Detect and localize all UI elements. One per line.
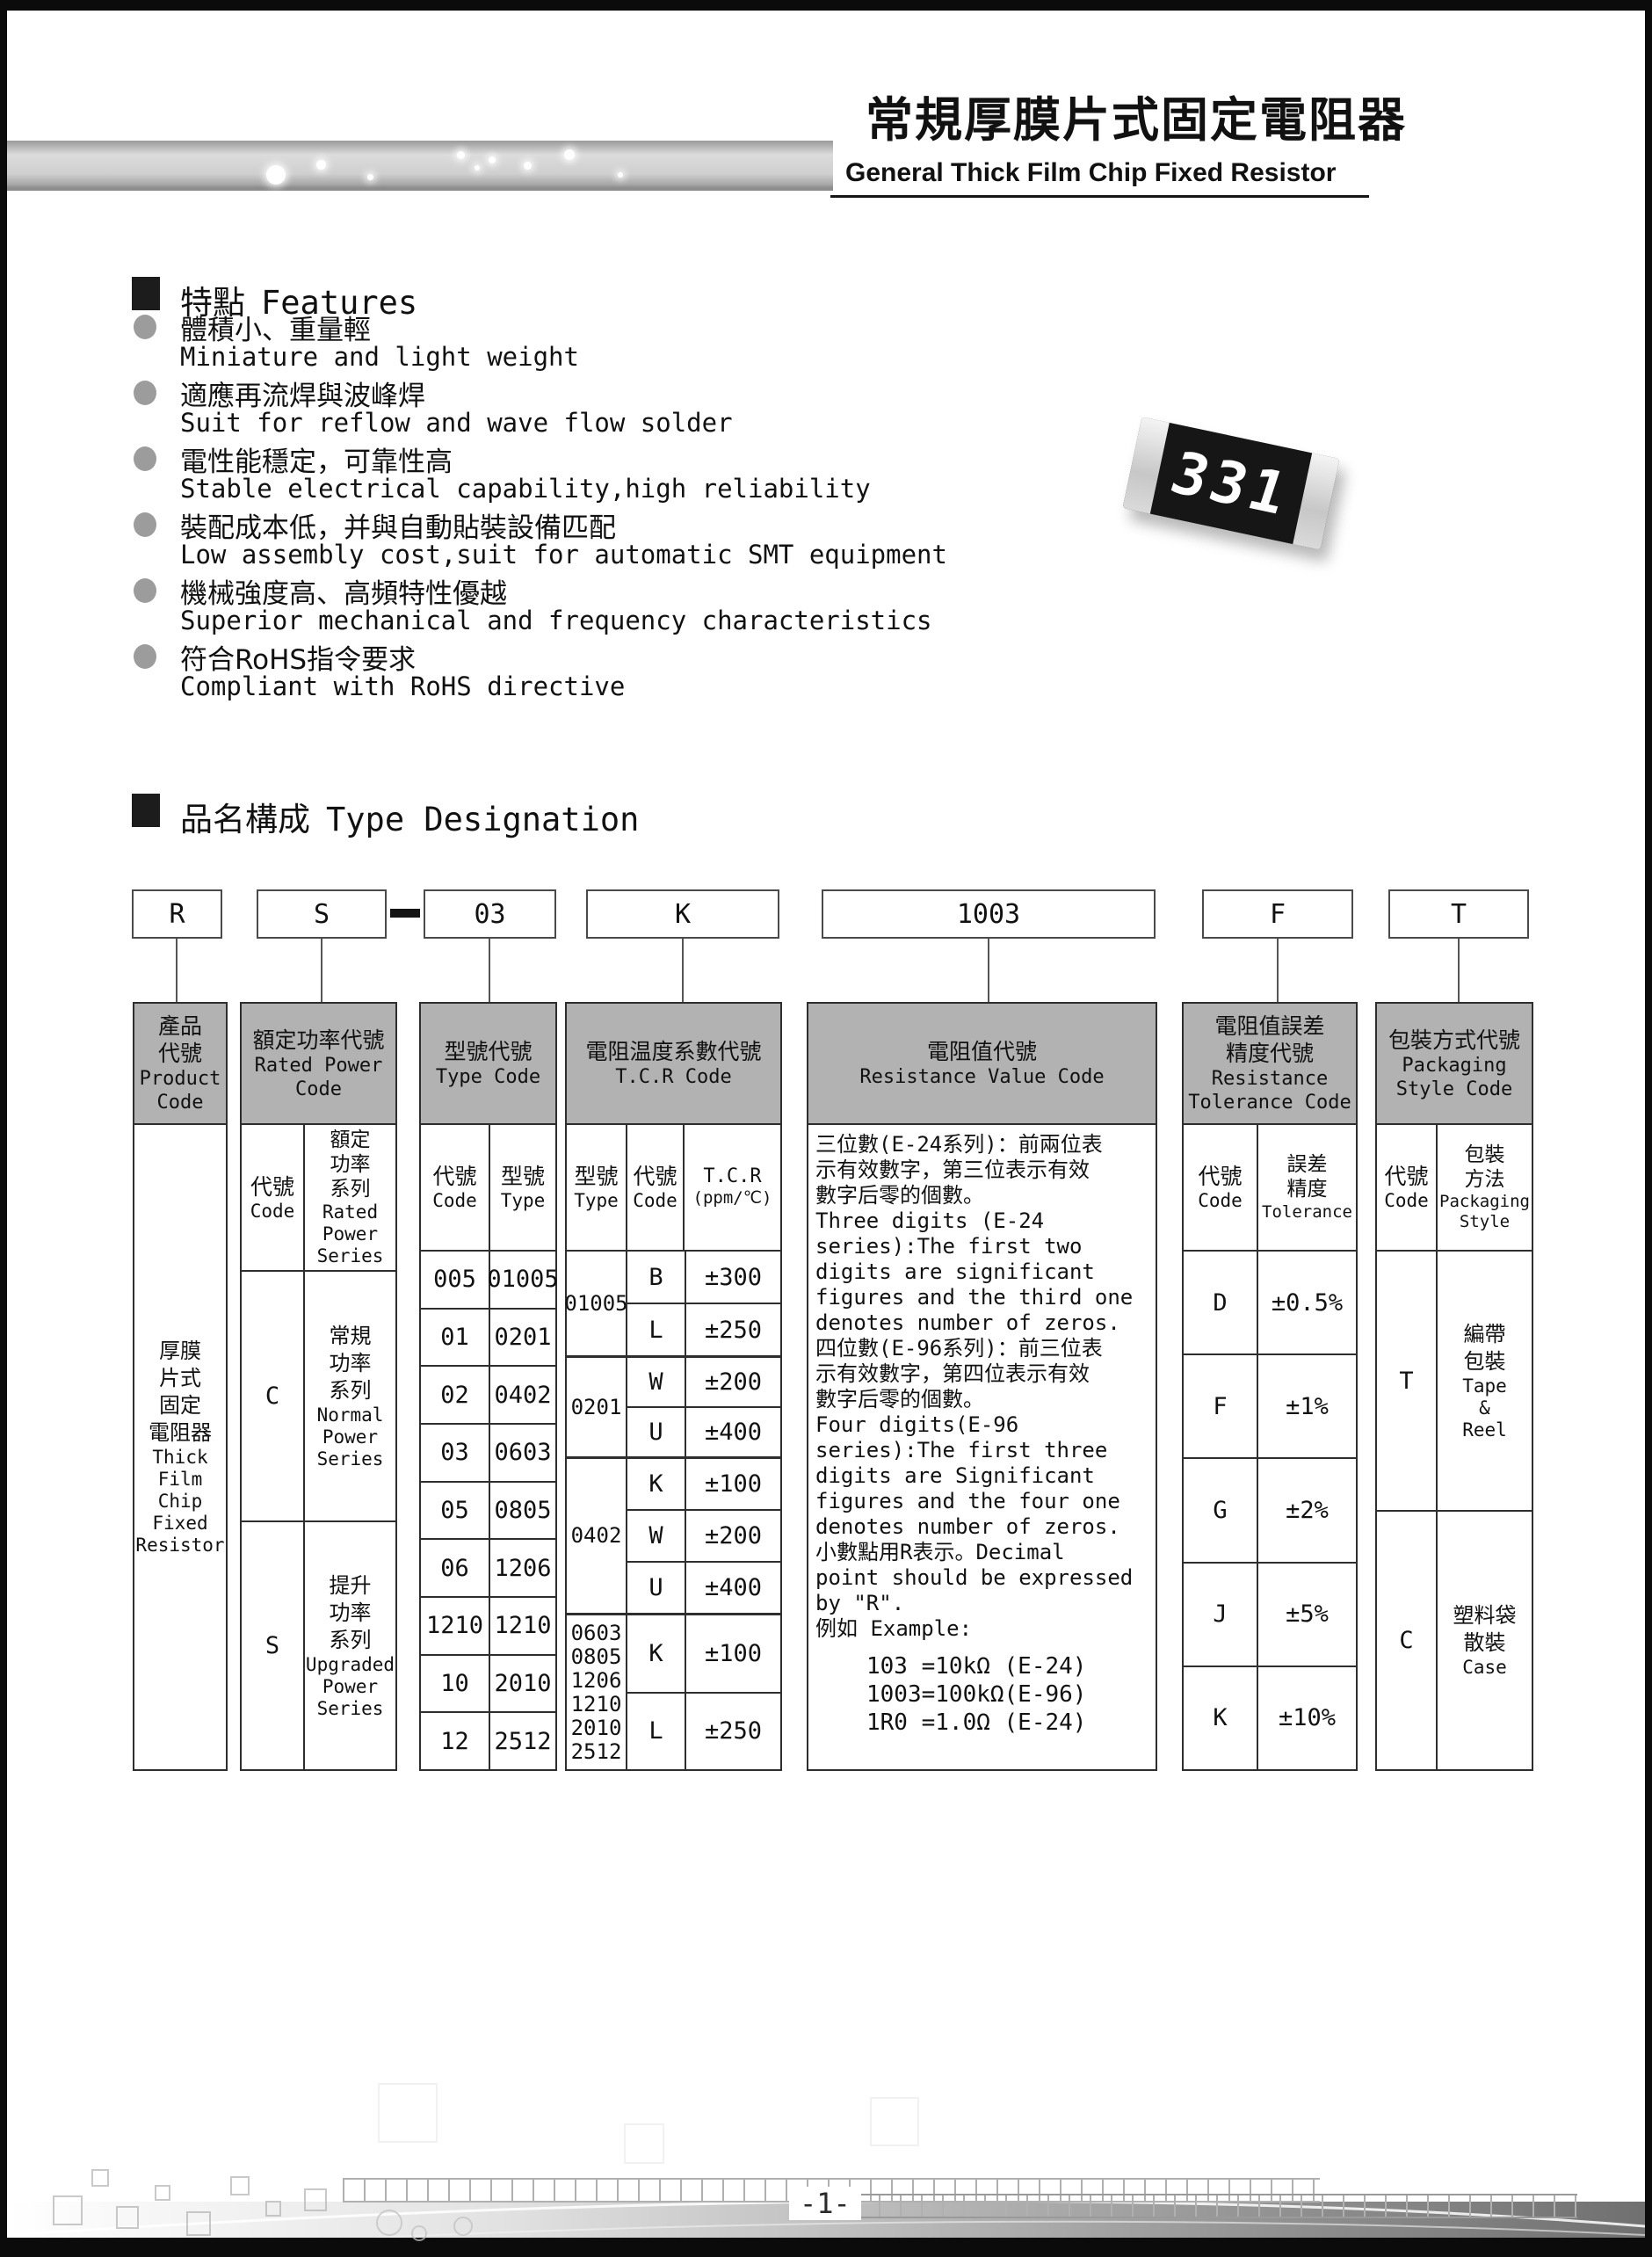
table-row: K±100 <box>627 1615 780 1692</box>
code-separator-dash <box>390 909 420 918</box>
type-code-cell: 06 <box>421 1540 489 1596</box>
code-box-type: 03 <box>424 889 556 939</box>
subheader-tolerance: 誤差 精度 Tolerance <box>1257 1125 1356 1250</box>
subheader-type: 型號 Type <box>489 1125 555 1250</box>
tcr-code-cell: B <box>627 1252 685 1303</box>
type-size-cell: 0603 <box>489 1425 555 1481</box>
page-title-chinese: 常規厚膜片式固定電阻器 <box>866 81 1407 150</box>
tcr-column: 電阻温度系數代號 T.C.R Code 型號 Type 代號 Code T.C.… <box>565 1002 782 1771</box>
header-gradient-band <box>7 141 833 191</box>
feature-bullet-icon <box>134 315 156 339</box>
table-row: 010201 <box>421 1308 555 1366</box>
power-series-en: Upgraded Power Series <box>306 1654 395 1720</box>
type-code-cell: 1210 <box>421 1598 489 1654</box>
table-row: U±400 <box>627 1406 780 1456</box>
subheader-type-en: Type <box>574 1190 619 1212</box>
table-row: W±200 <box>627 1509 780 1561</box>
type-code-cell: 03 <box>421 1425 489 1481</box>
tolerance-value-cell: ±1% <box>1257 1355 1356 1457</box>
tolerance-code-cell: K <box>1184 1667 1257 1769</box>
table-row: 050805 <box>421 1481 555 1539</box>
tcr-group-type: 0402 <box>567 1459 626 1613</box>
sparkle-dot <box>489 156 496 163</box>
rated-power-row-upgraded: S 提升 功率 系列 Upgraded Power Series <box>242 1522 395 1769</box>
tcr-value-cell: ±100 <box>685 1615 780 1692</box>
resistance-value-examples: 103 =10kΩ (E-24) 1003=100kΩ(E-96) 1R0 =1… <box>866 1652 1148 1737</box>
subheader-tol-en: Tolerance <box>1262 1201 1352 1223</box>
code-box-product: R <box>132 889 222 939</box>
table-row: B±300 <box>627 1252 780 1303</box>
table-row: 030603 <box>421 1423 555 1481</box>
tcr-value-cell: ±250 <box>685 1694 780 1770</box>
type-code-cell: 02 <box>421 1367 489 1423</box>
table-row: D±0.5% <box>1184 1252 1356 1353</box>
packaging-code: T <box>1377 1252 1436 1510</box>
sparkle-dot <box>457 151 465 159</box>
power-code: C <box>242 1272 303 1520</box>
tcr-group: 0603 0805 1206 1210 2010 2512 K±100 L±25… <box>567 1613 780 1769</box>
subheader-style-en: Packaging Style <box>1439 1192 1530 1232</box>
chip-body: 331 <box>1122 417 1339 550</box>
tcr-group-type: 0603 0805 1206 1210 2010 2512 <box>567 1615 626 1769</box>
tcr-group-type: 0201 <box>567 1358 626 1456</box>
packaging-header: 包裝方式代號 Packaging Style Code <box>1377 1004 1532 1125</box>
subheader-code-zh: 代號 <box>432 1163 476 1190</box>
tcr-group: 0402 K±100 W±200 U±400 <box>567 1456 780 1613</box>
subheader-code: 代號 Code <box>1184 1125 1257 1250</box>
feature-item-en: Low assembly cost,suit for automatic SMT… <box>180 540 947 570</box>
tcr-code-cell: W <box>627 1358 685 1406</box>
type-code-column: 型號代號 Type Code 代號 Code 型號 Type 00501005 … <box>419 1002 557 1771</box>
header-zh: 電阻值誤差 精度代號 <box>1214 1012 1324 1067</box>
subheader-code: 代號 Code <box>242 1125 303 1270</box>
subheader-style: 包裝 方法 Packaging Style <box>1436 1125 1532 1250</box>
product-code-header: 產品 代號 Product Code <box>134 1004 226 1125</box>
subheader-type-zh: 型號 <box>574 1163 618 1190</box>
header-en: Type Code <box>436 1065 540 1089</box>
tcr-subheader: 型號 Type 代號 Code T.C.R (ppm/℃) <box>567 1125 780 1252</box>
subheader-code: 代號 Code <box>421 1125 489 1250</box>
type-code-cell: 10 <box>421 1656 489 1712</box>
connector-line <box>176 939 178 1002</box>
packaging-style-en: Tape & Reel <box>1462 1375 1507 1441</box>
watermark-square <box>378 2083 438 2143</box>
decor-square <box>53 2195 83 2225</box>
subheader-type-zh: 型號 <box>501 1163 545 1190</box>
table-row: 12101210 <box>421 1596 555 1654</box>
table-row: K±100 <box>627 1459 780 1509</box>
packaging-style-zh: 編帶 包裝 <box>1464 1321 1506 1375</box>
subheader-type-en: Type <box>501 1190 546 1212</box>
type-size-cell: 2512 <box>489 1713 555 1769</box>
tcr-code-cell: L <box>627 1304 685 1355</box>
subheader-code-zh: 代號 <box>250 1173 294 1201</box>
code-box-packaging: T <box>1388 889 1529 939</box>
tcr-value-cell: ±200 <box>685 1358 780 1406</box>
subheader-code-zh: 代號 <box>1198 1163 1242 1190</box>
subheader-code-zh: 代號 <box>633 1163 677 1190</box>
subheader-code: 代號 Code <box>626 1125 683 1250</box>
subheader-code-en: Code <box>432 1190 477 1212</box>
tcr-value-cell: ±300 <box>685 1252 780 1303</box>
decor-circle <box>376 2210 402 2236</box>
table-row: 020402 <box>421 1365 555 1423</box>
type-code-header: 型號代號 Type Code <box>421 1004 555 1125</box>
chip-marking: 331 <box>1163 439 1299 528</box>
decor-circle <box>411 2225 427 2241</box>
tolerance-subheader: 代號 Code 誤差 精度 Tolerance <box>1184 1125 1356 1252</box>
datasheet-page: 常規厚膜片式固定電阻器 General Thick Film Chip Fixe… <box>0 0 1652 2257</box>
packaging-column: 包裝方式代號 Packaging Style Code 代號 Code 包裝 方… <box>1375 1002 1533 1771</box>
connector-line <box>682 939 684 1002</box>
connector-line <box>489 939 490 1002</box>
type-code-cell: 01 <box>421 1310 489 1366</box>
packaging-row-case: C 塑料袋 散裝 Case <box>1377 1512 1532 1769</box>
table-row: U±400 <box>627 1561 780 1613</box>
header-en: Resistance Tolerance Code <box>1188 1067 1351 1114</box>
tcr-groups: 01005 B±300 L±250 0201 W±200 U±400 0402 … <box>567 1252 780 1769</box>
sparkle-dot <box>564 149 575 160</box>
decor-square <box>230 2176 250 2195</box>
subheader-style-zh: 包裝 方法 <box>1465 1143 1505 1192</box>
header-en: Resistance Value Code <box>859 1065 1104 1089</box>
subheader-tcr-line2: (ppm/℃) <box>693 1187 772 1209</box>
tcr-code-cell: W <box>627 1511 685 1561</box>
header-zh: 額定功率代號 <box>252 1027 384 1054</box>
sparkle-dot <box>316 160 326 170</box>
header-zh: 電阻值代號 <box>927 1038 1037 1065</box>
section-marker-icon <box>132 277 160 310</box>
resistance-value-description: 三位數(E-24系列)：前兩位表 示有效數字，第三位表示有效 數字后零的個數。 … <box>815 1132 1148 1642</box>
code-box-value: 1003 <box>822 889 1156 939</box>
table-row: G±2% <box>1184 1457 1356 1561</box>
table-row: 102010 <box>421 1654 555 1712</box>
feature-bullet-icon <box>134 512 156 537</box>
tcr-code-cell: L <box>627 1694 685 1770</box>
tolerance-code-cell: F <box>1184 1355 1257 1457</box>
page-border-right <box>1645 0 1652 2257</box>
power-series-zh: 提升 功率 系列 <box>330 1572 372 1654</box>
decor-square <box>116 2206 139 2229</box>
tcr-value-cell: ±400 <box>685 1408 780 1456</box>
header-zh: 包裝方式代號 <box>1388 1027 1520 1054</box>
subheader-series-en: Rated Power Series <box>317 1201 384 1267</box>
feature-bullet-icon <box>134 446 156 471</box>
table-row: L±250 <box>627 1303 780 1355</box>
sparkle-dot <box>524 162 532 170</box>
section-marker-icon <box>132 794 160 827</box>
table-row: 122512 <box>421 1711 555 1769</box>
type-size-cell: 0805 <box>489 1483 555 1539</box>
sparkle-dot <box>475 165 480 171</box>
tolerance-value-cell: ±10% <box>1257 1667 1356 1769</box>
subheader-code-zh: 代號 <box>1384 1163 1428 1190</box>
tolerance-value-cell: ±5% <box>1257 1564 1356 1666</box>
feature-item-en: Superior mechanical and frequency charac… <box>180 606 932 635</box>
type-size-cell: 01005 <box>489 1252 555 1308</box>
page-title-english: General Thick Film Chip Fixed Resistor <box>845 158 1373 188</box>
type-code-cell: 12 <box>421 1713 489 1769</box>
packaging-style-en: Case <box>1462 1657 1507 1679</box>
table-row: L±250 <box>627 1692 780 1770</box>
subheader-type: 型號 Type <box>567 1125 626 1250</box>
decor-square <box>155 2185 170 2201</box>
packaging-style-zh: 塑料袋 散裝 <box>1453 1602 1517 1657</box>
tolerance-code-cell: D <box>1184 1252 1257 1353</box>
type-size-cell: 1210 <box>489 1598 555 1654</box>
rated-power-column: 額定功率代號 Rated Power Code 代號 Code 額定 功率 系列… <box>240 1002 397 1771</box>
feature-item-en: Suit for reflow and wave flow solder <box>180 408 733 438</box>
code-box-tolerance: F <box>1202 889 1353 939</box>
feature-bullet-icon <box>134 381 156 405</box>
sparkle-dot <box>618 172 623 178</box>
tcr-group: 0201 W±200 U±400 <box>567 1355 780 1456</box>
table-row: 00501005 <box>421 1252 555 1308</box>
subheader-tcr: T.C.R (ppm/℃) <box>683 1125 780 1250</box>
resistance-value-body: 三位數(E-24系列)：前兩位表 示有效數字，第三位表示有效 數字后零的個數。 … <box>808 1125 1156 1769</box>
type-code-subheader: 代號 Code 型號 Type <box>421 1125 555 1252</box>
subheader-series: 額定 功率 系列 Rated Power Series <box>303 1125 395 1270</box>
packaging-subheader: 代號 Code 包裝 方法 Packaging Style <box>1377 1125 1532 1252</box>
tolerance-column: 電阻值誤差 精度代號 Resistance Tolerance Code 代號 … <box>1182 1002 1358 1771</box>
watermark-square <box>870 2097 919 2146</box>
chip-end-cap-right <box>1293 453 1339 549</box>
tcr-value-cell: ±250 <box>685 1304 780 1355</box>
tolerance-value-cell: ±0.5% <box>1257 1252 1356 1353</box>
rated-power-header: 額定功率代號 Rated Power Code <box>242 1004 395 1125</box>
packaging-code: C <box>1377 1512 1436 1769</box>
product-code-body: 厚膜 片式 固定 電阻器 Thick Film Chip Fixed Resis… <box>134 1125 226 1769</box>
product-name-en: Thick Film Chip Fixed Resistor <box>135 1447 224 1557</box>
header-en: Rated Power Code <box>255 1054 383 1101</box>
decor-square <box>91 2169 109 2187</box>
tcr-group-type: 01005 <box>567 1252 626 1355</box>
page-border-top <box>0 0 1652 11</box>
page-border-bottom <box>0 2238 1652 2257</box>
feature-bullet-icon <box>134 644 156 669</box>
tcr-code-cell: K <box>627 1615 685 1692</box>
tolerance-rows: D±0.5% F±1% G±2% J±5% K±10% <box>1184 1252 1356 1769</box>
type-designation-heading-zh: 品名構成 <box>180 801 310 838</box>
type-designation-heading: 品名構成Type Designation <box>180 793 639 840</box>
tcr-code-cell: K <box>627 1459 685 1509</box>
tolerance-code-cell: J <box>1184 1564 1257 1666</box>
product-name-zh: 厚膜 片式 固定 電阻器 <box>149 1338 212 1447</box>
table-row: J±5% <box>1184 1562 1356 1666</box>
subheader-code-en: Code <box>1198 1190 1243 1212</box>
tcr-code-cell: U <box>627 1563 685 1613</box>
type-code-rows: 00501005 010201 020402 030603 050805 061… <box>421 1252 555 1769</box>
tolerance-code-cell: G <box>1184 1459 1257 1561</box>
sparkle-dot <box>266 165 286 185</box>
packaging-style: 塑料袋 散裝 Case <box>1436 1512 1532 1769</box>
connector-line <box>988 939 989 1002</box>
tolerance-header: 電阻值誤差 精度代號 Resistance Tolerance Code <box>1184 1004 1356 1125</box>
feature-bullet-icon <box>134 578 156 603</box>
tolerance-value-cell: ±2% <box>1257 1459 1356 1561</box>
power-series: 提升 功率 系列 Upgraded Power Series <box>303 1522 395 1769</box>
connector-line <box>321 939 322 1002</box>
header-zh: 產品 代號 <box>158 1012 202 1067</box>
subheader-tcr-line1: T.C.R <box>703 1165 761 1187</box>
connector-line <box>1277 939 1279 1002</box>
square-pattern-strip <box>837 2194 1577 2218</box>
feature-item-en: Stable electrical capability,high reliab… <box>180 474 871 504</box>
power-code: S <box>242 1522 303 1769</box>
sparkle-dot <box>367 174 373 180</box>
type-size-cell: 1206 <box>489 1540 555 1596</box>
tcr-header: 電阻温度系數代號 T.C.R Code <box>567 1004 780 1125</box>
resistance-value-column: 電阻值代號 Resistance Value Code 三位數(E-24系列)：… <box>807 1002 1157 1771</box>
tcr-value-cell: ±100 <box>685 1459 780 1509</box>
decor-square <box>265 2201 281 2217</box>
rated-power-row-normal: C 常規 功率 系列 Normal Power Series <box>242 1272 395 1522</box>
tcr-value-cell: ±400 <box>685 1563 780 1613</box>
power-series: 常規 功率 系列 Normal Power Series <box>303 1272 395 1520</box>
tcr-code-cell: U <box>627 1408 685 1456</box>
table-row: F±1% <box>1184 1353 1356 1457</box>
feature-item-en: Miniature and light weight <box>180 342 579 372</box>
type-size-cell: 2010 <box>489 1656 555 1712</box>
type-designation-heading-en: Type Designation <box>326 801 639 838</box>
chip-end-cap-left <box>1122 417 1169 513</box>
connector-line <box>1458 939 1460 1002</box>
code-box-power: S <box>257 889 387 939</box>
page-number: -1- <box>789 2187 861 2220</box>
subheader-code: 代號 Code <box>1377 1125 1436 1250</box>
packaging-style: 編帶 包裝 Tape & Reel <box>1436 1252 1532 1510</box>
decor-square <box>186 2211 211 2236</box>
table-row: K±10% <box>1184 1666 1356 1769</box>
table-row: W±200 <box>627 1358 780 1406</box>
type-code-cell: 005 <box>421 1252 489 1308</box>
header-en: Packaging Style Code <box>1396 1054 1512 1101</box>
subheader-code-en: Code <box>1384 1190 1429 1212</box>
product-code-column: 產品 代號 Product Code 厚膜 片式 固定 電阻器 Thick Fi… <box>133 1002 228 1771</box>
tcr-group: 01005 B±300 L±250 <box>567 1252 780 1355</box>
packaging-row-tape: T 編帶 包裝 Tape & Reel <box>1377 1252 1532 1512</box>
resistance-value-header: 電阻值代號 Resistance Value Code <box>808 1004 1156 1125</box>
subheader-series-zh: 額定 功率 系列 <box>330 1128 371 1201</box>
decor-square <box>304 2188 327 2211</box>
watermark-square <box>624 2123 664 2164</box>
subheader-tol-zh: 誤差 精度 <box>1287 1152 1328 1201</box>
type-size-cell: 0402 <box>489 1367 555 1423</box>
title-underline <box>830 195 1369 198</box>
chip-resistor-photo: 331 <box>1116 400 1353 589</box>
code-box-tcr: K <box>586 889 779 939</box>
power-series-en: Normal Power Series <box>317 1404 384 1470</box>
decor-circle <box>453 2217 473 2236</box>
feature-item-en: Compliant with RoHS directive <box>180 671 625 701</box>
header-zh: 型號代號 <box>444 1038 532 1065</box>
page-border-left <box>0 0 7 2257</box>
table-row: 061206 <box>421 1538 555 1596</box>
header-en: T.C.R Code <box>615 1065 731 1089</box>
header-zh: 電阻温度系數代號 <box>585 1038 761 1065</box>
type-code-cell: 05 <box>421 1483 489 1539</box>
subheader-code-en: Code <box>250 1201 295 1223</box>
tcr-value-cell: ±200 <box>685 1511 780 1561</box>
subheader-code-en: Code <box>633 1190 677 1212</box>
header-en: Product Code <box>140 1067 221 1114</box>
type-size-cell: 0201 <box>489 1310 555 1366</box>
power-series-zh: 常規 功率 系列 <box>330 1323 372 1404</box>
rated-power-subheader: 代號 Code 額定 功率 系列 Rated Power Series <box>242 1125 395 1272</box>
